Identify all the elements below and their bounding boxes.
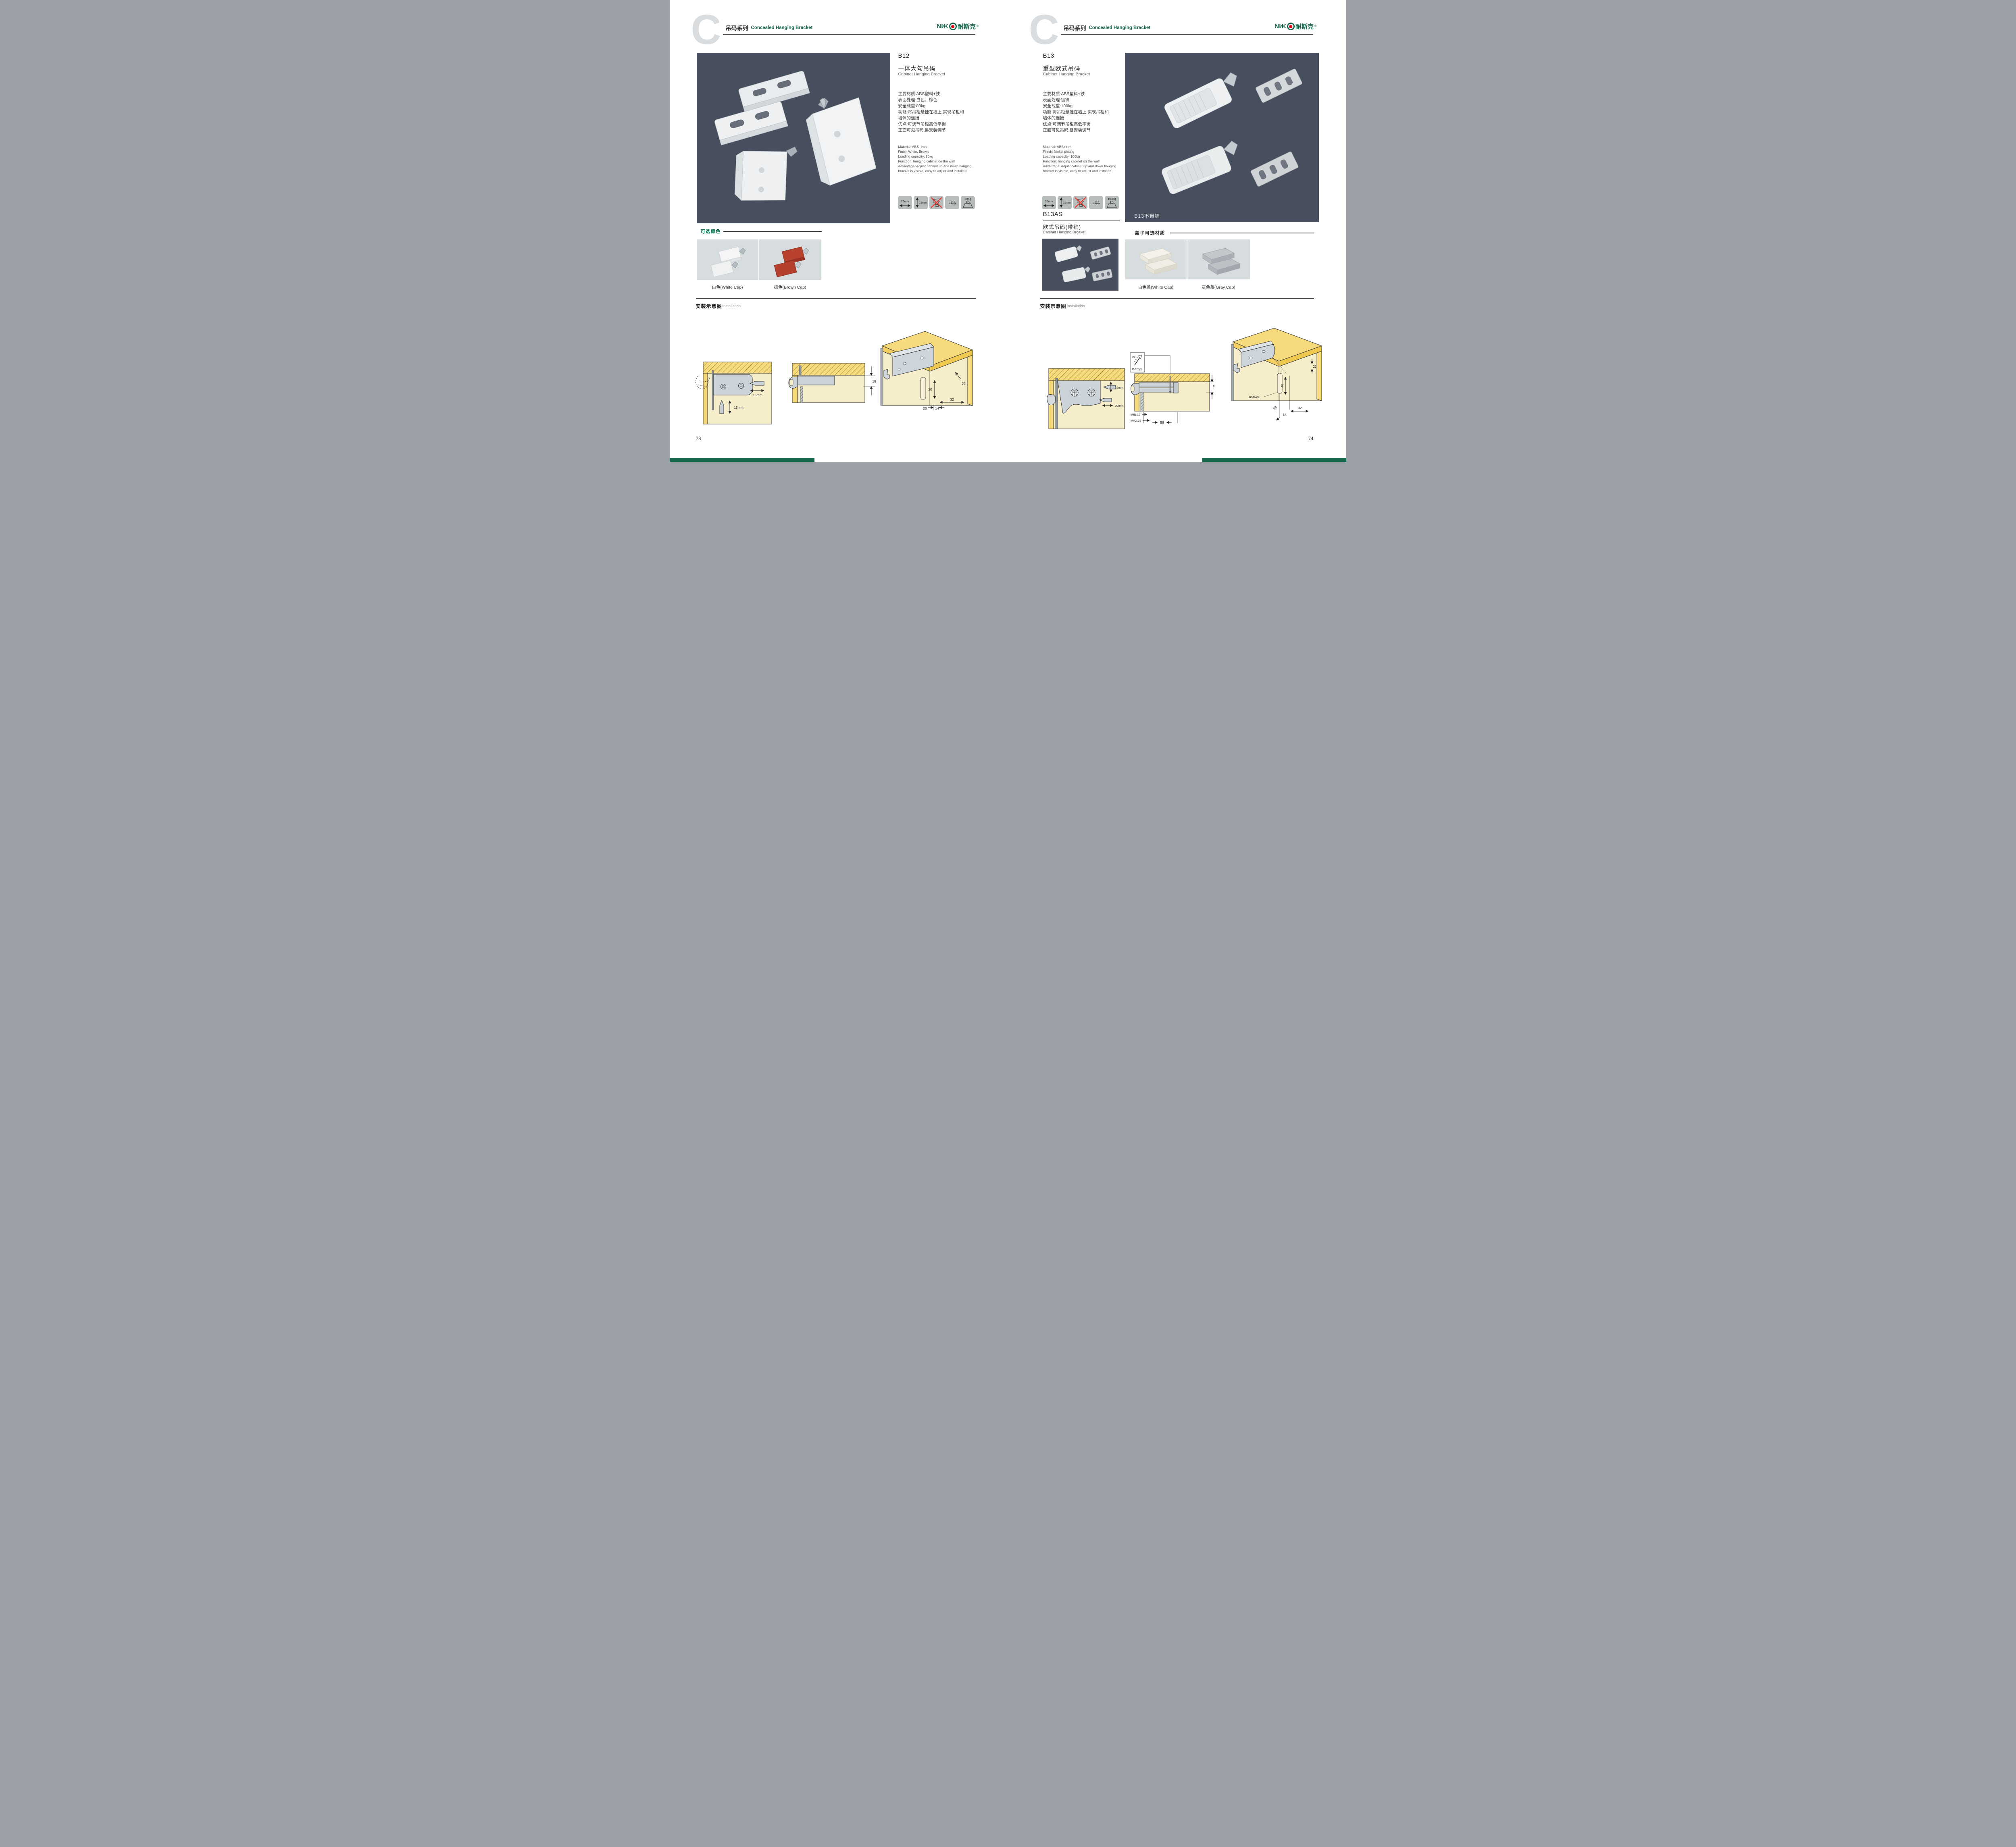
- photo-variant-label: B13不带销: [1135, 212, 1160, 219]
- panel-thickness-icon: 15mm: [914, 196, 928, 209]
- svg-text:LGA: LGA: [948, 201, 956, 205]
- color-options-rule: [723, 231, 822, 232]
- product-name-cn-b13: 重型欧式吊码: [1043, 64, 1081, 73]
- product-name-en: Cabinet Hanging Bracket: [898, 72, 946, 77]
- install-diagram-b12-side: 18: [788, 360, 878, 406]
- install-divider: [696, 298, 976, 299]
- svg-text:18: 18: [1212, 385, 1214, 389]
- product-name-en-b13as: Cabinet Hanging Brcaket: [1043, 230, 1086, 235]
- brand-logo-text: NI∕K: [1275, 23, 1286, 30]
- series-title-cn-right: 吊码系列: [1064, 24, 1086, 32]
- load-capacity-icon-b13: 100Kg: [1105, 196, 1119, 209]
- install-diagram-b12-perspective: 33 30 32 20 14: [873, 329, 975, 418]
- product-name-cn-b13as: 欧式吊码(带销): [1043, 223, 1081, 231]
- svg-text:32: 32: [1298, 406, 1302, 410]
- swatch-brown-caption: 棕色(Brown Cap): [759, 284, 821, 290]
- panel-thickness-icon-b13: 15mm: [1058, 196, 1072, 209]
- swatch-white-caption: 白色(White Cap): [697, 284, 758, 290]
- install-title-cn: 安装示意图: [696, 303, 722, 310]
- svg-text:Φ4mm: Φ4mm: [1132, 367, 1142, 371]
- series-title-en: Concealed Hanging Bracket: [751, 25, 813, 30]
- svg-text:16mm: 16mm: [753, 393, 762, 397]
- b13as-rule: [1043, 220, 1120, 220]
- product-photo-b12: [697, 53, 890, 223]
- svg-text:33: 33: [962, 381, 966, 385]
- load-capacity-icon: 80Kg: [961, 196, 975, 209]
- panel-width-icon-b13: 20mm: [1042, 196, 1056, 209]
- svg-text:58: 58: [1160, 420, 1164, 424]
- brand-logo-cn: 耐斯克: [958, 22, 976, 31]
- footer-bar-right: [1202, 458, 1346, 462]
- svg-text:MIN.15: MIN.15: [1131, 413, 1140, 416]
- brand-logo-right: NI∕K耐斯克®: [1275, 22, 1317, 31]
- product-specs-en: Material: ABS+ironFinish:White, Brown Lo…: [898, 144, 981, 173]
- install-title-en: Installation: [723, 304, 741, 308]
- svg-text:20mm: 20mm: [1045, 200, 1053, 203]
- install-diagram-b13-perspective: 16 40 RMAX4 19 18 32: [1226, 326, 1324, 421]
- product-code-b13: B13: [1043, 52, 1054, 59]
- product-specs-en-b13: Material: ABS+ironFinish: Nickel plating…: [1043, 144, 1126, 173]
- brand-logo-o-icon: [1287, 23, 1295, 30]
- product-photo-b13: B13不带销: [1125, 53, 1319, 222]
- brand-logo: NI∕K耐斯克®: [937, 22, 979, 31]
- product-photo-b13as: [1042, 239, 1118, 291]
- install-diagram-b13-section: 2x Φ4mm 18 MIN.15 MAX.35 58: [1130, 352, 1214, 426]
- registered-mark: ®: [1314, 25, 1316, 28]
- product-code-b13as: B13AS: [1043, 211, 1063, 218]
- section-letter-watermark-right: C: [1029, 9, 1059, 51]
- svg-text:2x: 2x: [1132, 355, 1135, 359]
- lga-certification-icon: LGA: [945, 196, 959, 209]
- svg-text:15mm: 15mm: [1063, 202, 1071, 204]
- svg-text:MAX.35: MAX.35: [1131, 419, 1141, 422]
- install-diagram-b13-front: 15mm 20mm: [1046, 366, 1127, 432]
- svg-text:14: 14: [935, 406, 939, 410]
- install-title-en-right: Installation: [1067, 304, 1085, 308]
- catalog-spread: C 吊码系列 Concealed Hanging Bracket NI∕K耐斯克…: [670, 0, 1346, 462]
- svg-text:15mm: 15mm: [734, 406, 744, 410]
- series-title-en-right: Concealed Hanging Bracket: [1089, 25, 1151, 30]
- cap-options-rule: [1170, 233, 1314, 233]
- header-rule: [723, 34, 975, 35]
- registered-mark: ®: [977, 25, 979, 28]
- svg-text:30: 30: [928, 387, 932, 391]
- swatch-brown-cap: [759, 239, 821, 280]
- product-specs-cn-b13: 主要材质:ABS塑料+铁表面处理:镀镍 安全载重:100kg功能:将吊柜悬挂在墙…: [1043, 91, 1124, 133]
- svg-text:20mm: 20mm: [1115, 404, 1123, 408]
- install-divider-right: [1040, 298, 1314, 299]
- swatch-gray-cover-caption: 灰色盖(Gray Cap): [1187, 284, 1250, 290]
- color-options-title: 可选颜色: [701, 228, 721, 235]
- svg-text:80Kg: 80Kg: [964, 198, 971, 201]
- svg-text:15mm: 15mm: [919, 202, 927, 204]
- brand-logo-cn: 耐斯克: [1295, 22, 1314, 31]
- product-photo-b13-render: [1125, 53, 1319, 222]
- no-drill-icon: [929, 196, 943, 209]
- swatch-gray-cover: [1187, 239, 1250, 279]
- page-number-left: 73: [696, 435, 701, 442]
- svg-text:RMAX4: RMAX4: [1249, 395, 1260, 399]
- swatch-white-cap: [697, 239, 758, 280]
- section-letter-watermark: C: [691, 9, 721, 51]
- series-title-cn: 吊码系列: [726, 24, 748, 32]
- footer-bar-left: [670, 458, 814, 462]
- product-name-en-b13: Cabinet Hanging Bracket: [1043, 72, 1090, 77]
- install-title-cn-right: 安装示意图: [1040, 303, 1066, 310]
- svg-text:18: 18: [1283, 413, 1287, 417]
- svg-text:16mm: 16mm: [901, 200, 909, 203]
- page-number-right: 74: [1308, 435, 1314, 442]
- panel-width-icon: 16mm: [898, 196, 912, 209]
- header-rule-right: [1061, 34, 1313, 35]
- swatch-white-cover: [1125, 239, 1187, 279]
- svg-text:19: 19: [1272, 405, 1278, 411]
- product-code: B12: [898, 52, 910, 59]
- product-specs-cn: 主要材质:ABS塑料+铁表面处理:白色、棕色 安全载重:80kg功能:将吊柜悬挂…: [898, 91, 979, 133]
- svg-text:100Kg: 100Kg: [1108, 198, 1116, 201]
- svg-text:40: 40: [1280, 384, 1284, 388]
- svg-text:16: 16: [1312, 364, 1316, 368]
- brand-logo-text: NI∕K: [937, 23, 948, 30]
- svg-text:20: 20: [923, 406, 927, 410]
- lga-certification-icon-b13: LGA: [1089, 196, 1103, 209]
- cap-options-title: 盖子可选材质: [1135, 230, 1165, 236]
- no-drill-icon-b13: [1073, 196, 1087, 209]
- svg-text:15mm: 15mm: [1115, 386, 1123, 389]
- header-separator-right: [1086, 25, 1086, 31]
- product-photo-b12-render: [697, 53, 890, 223]
- header-separator: [748, 25, 748, 31]
- swatch-white-cover-caption: 白色盖(White Cap): [1125, 284, 1187, 290]
- svg-text:32: 32: [950, 397, 954, 401]
- svg-text:LGA: LGA: [1092, 201, 1100, 205]
- product-name-cn: 一体大勾吊码: [898, 64, 936, 73]
- install-diagram-b12-front: 16mm 15mm: [694, 360, 774, 427]
- brand-logo-o-icon: [949, 23, 957, 30]
